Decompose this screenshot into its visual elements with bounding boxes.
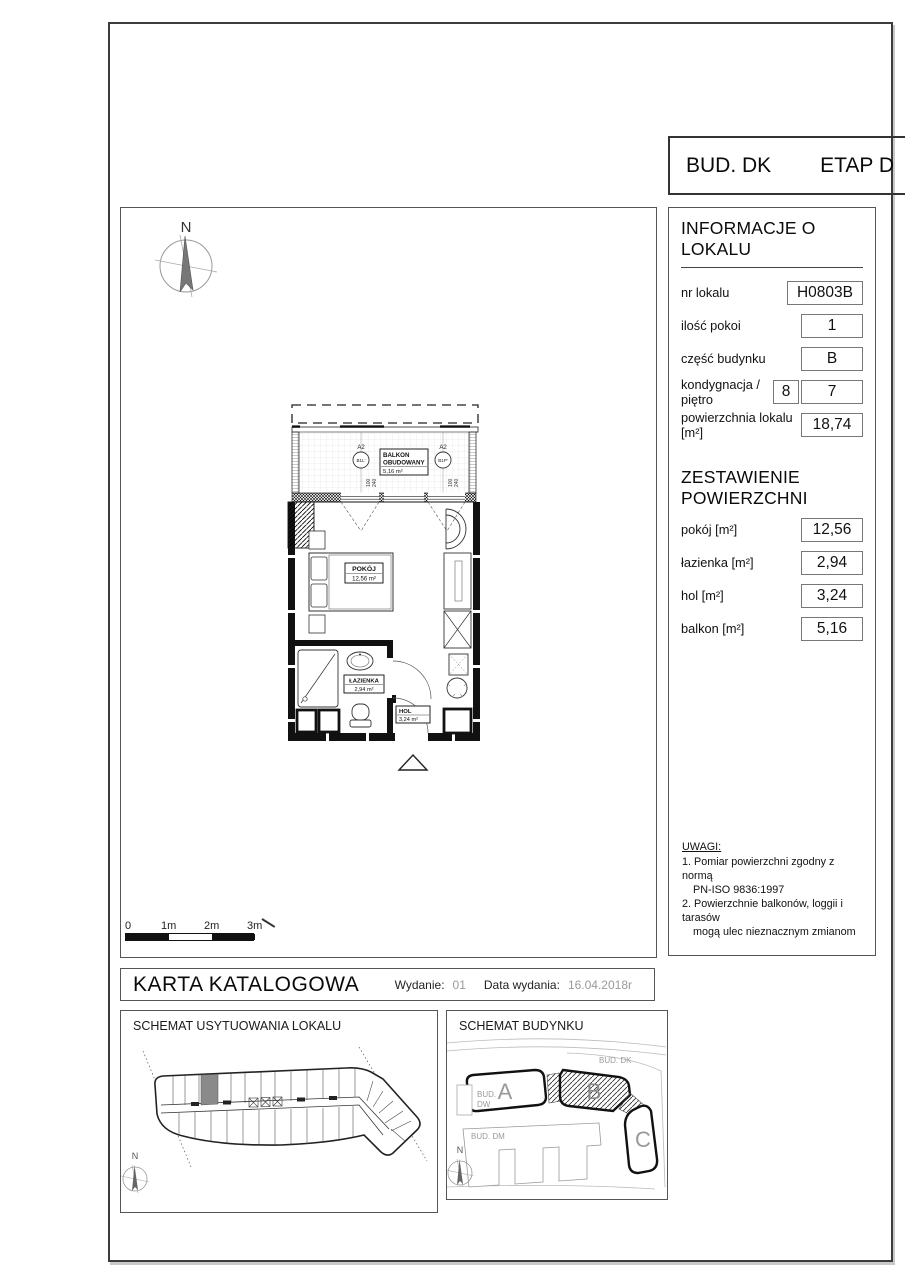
scale-label: 3m [247, 920, 262, 932]
window-id: B1L' [356, 458, 365, 463]
bathroom-cabinets [297, 710, 339, 732]
svg-text:12,56 m²: 12,56 m² [352, 577, 376, 583]
svg-text:HOL: HOL [399, 709, 412, 715]
value-box: 7 [801, 380, 863, 404]
info-row: nr lokalu H0803B [681, 276, 863, 309]
scale-label: 2m [204, 920, 219, 932]
note-line: PN-ISO 9836:1997 [682, 883, 860, 897]
svg-text:3,24 m²: 3,24 m² [399, 717, 418, 723]
value-box: 12,56 [801, 518, 863, 542]
value-box: 18,74 [801, 413, 863, 437]
building-b-label: B [587, 1079, 602, 1104]
area-row: balkon [m²] 5,16 [681, 612, 863, 645]
door-swing-bathroom [393, 661, 431, 699]
value-box: B [801, 347, 863, 371]
svg-text:ŁAZIENKA: ŁAZIENKA [349, 679, 380, 685]
washbasin [347, 652, 373, 670]
building-label: BUD. DK [686, 154, 771, 178]
building-header: BUD. DK ETAP D [668, 136, 905, 195]
north-label: N [132, 1151, 139, 1161]
info-row: kondygnacja / piętro 8 7 [681, 375, 863, 408]
info-row: część budynku B [681, 342, 863, 375]
value-box: 3,24 [801, 584, 863, 608]
floor-plan-drawing: A2 B1L' 100 240 A2 B1P' 100 240 BALKON O… [284, 403, 484, 778]
entrance-marker [399, 755, 427, 770]
date-value: 16.04.2018r [568, 978, 632, 992]
svg-text:OBUDOWANY: OBUDOWANY [383, 460, 425, 467]
bud-dk-label: BUD. DK [599, 1056, 632, 1065]
armchair [446, 509, 466, 549]
info-row: ilość pokoi 1 [681, 309, 863, 342]
window-id: B1P' [438, 458, 448, 463]
info-panel: INFORMACJE O LOKALU nr lokalu H0803B ilo… [668, 207, 876, 956]
bud-dm-label: BUD. DM [471, 1132, 505, 1141]
balcony-label: BALKON OBUDOWANY 5,16 m² [380, 449, 428, 475]
schematic-title: SCHEMAT USYTUOWANIA LOKALU [121, 1011, 437, 1033]
bud-dw-label: BUD. [477, 1090, 496, 1099]
floor-plan-panel: N [120, 207, 657, 958]
north-label: N [457, 1145, 464, 1155]
room-label-lazienka: ŁAZIENKA 2,94 m² [344, 675, 384, 693]
value-box: H0803B [787, 281, 863, 305]
window-dim: 240 [454, 478, 460, 487]
svg-text:5,16 m²: 5,16 m² [383, 469, 403, 475]
window-code: A2 [439, 445, 447, 451]
room-label-pokoj: POKÓJ 12,56 m² [345, 563, 383, 583]
areas-panel-title: ZESTAWIENIE POWIERZCHNI [681, 467, 863, 509]
area-row: hol [m²] 3,24 [681, 579, 863, 612]
edition-label: Wydanie: [395, 978, 445, 992]
upper-outline [292, 405, 478, 423]
document-title: KARTA KATALOGOWA [133, 973, 359, 997]
notes-block: UWAGI: 1. Pomiar powierzchni zgodny z no… [682, 840, 860, 939]
compass-icon: N [121, 1151, 149, 1193]
building-c-label: C [635, 1127, 651, 1152]
wardrobe [444, 553, 471, 648]
site-plan: BUD. DK A B C BUD. DW BUD. DM [447, 1037, 667, 1197]
north-label: N [181, 219, 192, 236]
svg-text:BALKON: BALKON [383, 452, 410, 459]
note-line: 2. Powierzchnie balkonów, loggii i taras… [682, 897, 860, 925]
window-opening [341, 492, 465, 502]
footer-band: KARTA KATALOGOWA Wydanie: 01 Data wydani… [120, 968, 655, 1001]
svg-text:POKÓJ: POKÓJ [352, 564, 376, 573]
notes-title: UWAGI: [682, 840, 860, 854]
area-row: pokój [m²] 12,56 [681, 513, 863, 546]
building-site-schematic: SCHEMAT BUDYNKU BUD. DK A B [446, 1010, 668, 1200]
area-row: łazienka [m²] 2,94 [681, 546, 863, 579]
note-line: mogą ulec nieznacznym zmianom [682, 925, 860, 939]
value-box: 1 [801, 314, 863, 338]
shower [298, 650, 338, 707]
date-label: Data wydania: [484, 978, 560, 992]
value-box: 8 [773, 380, 799, 404]
schematic-title: SCHEMAT BUDYNKU [447, 1011, 667, 1033]
bud-dw-label: DW [477, 1100, 491, 1109]
unit-location-schematic: SCHEMAT USYTUOWANIA LOKALU [120, 1010, 438, 1213]
value-box: 2,94 [801, 551, 863, 575]
info-row: powierzchnia lokalu [m²] 18,74 [681, 408, 863, 441]
scale-bar: 0 1m 2m 3m [125, 920, 285, 941]
scale-label: 0 [125, 920, 131, 932]
building-a-label: A [498, 1079, 513, 1104]
stage-label: ETAP D [820, 154, 894, 178]
edition-value: 01 [453, 978, 466, 992]
window-dim: 240 [372, 478, 378, 487]
info-panel-title: INFORMACJE O LOKALU [681, 218, 863, 268]
kitchenette [444, 654, 471, 733]
scale-label: 1m [161, 920, 176, 932]
catalog-page: BUD. DK ETAP D N [108, 22, 893, 1262]
compass-icon: N [149, 214, 223, 306]
highlighted-unit [201, 1074, 218, 1105]
toilet [350, 704, 371, 727]
note-line: 1. Pomiar powierzchni zgodny z normą [682, 855, 860, 883]
building-floor-schematic: N [121, 1039, 437, 1209]
room-label-hol: HOL 3,24 m² [396, 706, 430, 723]
window-code: A2 [357, 445, 365, 451]
value-box: 5,16 [801, 617, 863, 641]
svg-text:2,94 m²: 2,94 m² [355, 687, 374, 693]
